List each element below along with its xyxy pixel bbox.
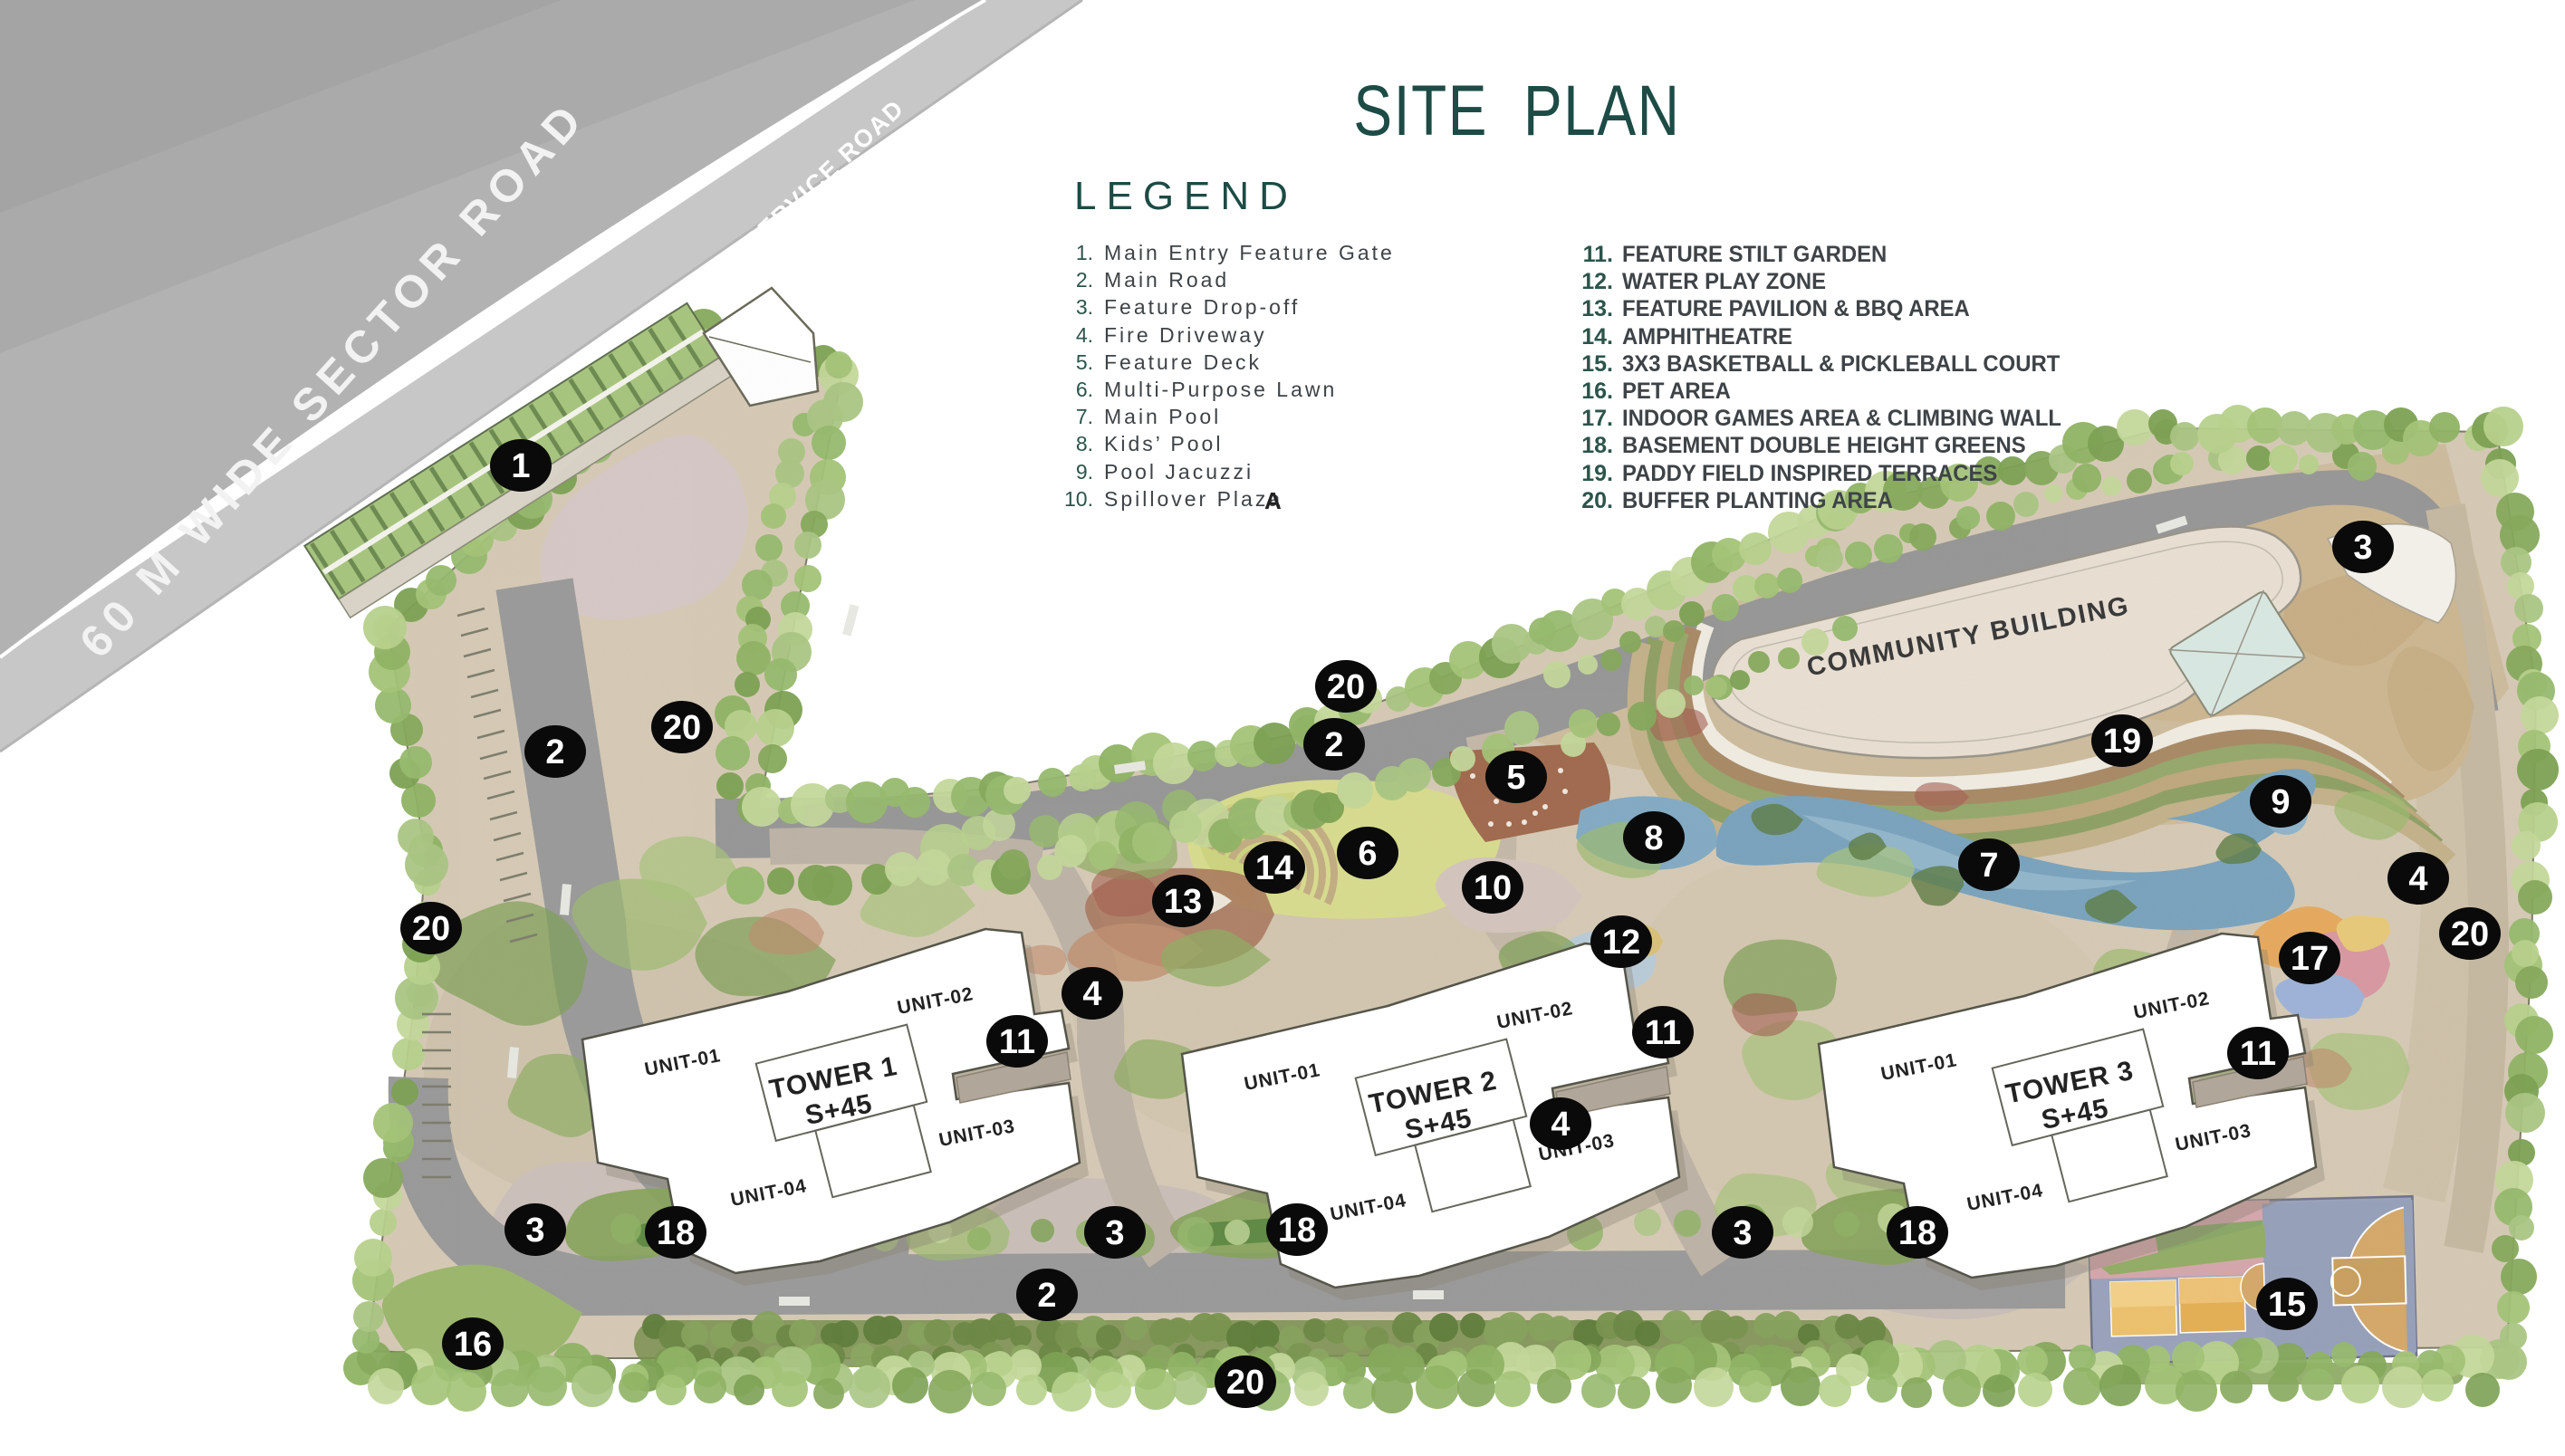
svg-text:19: 19 [2103,723,2141,761]
svg-text:2: 2 [1037,1277,1056,1315]
svg-text:3: 3 [525,1212,544,1250]
svg-text:2: 2 [1324,726,1343,764]
svg-text:20: 20 [2451,915,2489,953]
svg-text:18: 18 [1278,1212,1316,1250]
svg-text:3: 3 [2353,529,2372,567]
svg-text:14: 14 [1255,849,1293,887]
svg-text:11: 11 [2240,1035,2276,1073]
svg-text:5: 5 [1506,759,1525,797]
svg-text:20: 20 [663,709,701,747]
svg-text:20: 20 [1327,668,1365,706]
svg-text:4: 4 [1551,1106,1570,1144]
svg-text:7: 7 [1979,847,1998,885]
svg-text:6: 6 [1358,835,1377,873]
svg-text:8: 8 [1644,819,1663,857]
svg-text:15: 15 [2268,1286,2306,1324]
svg-text:3: 3 [1733,1214,1752,1252]
svg-text:3: 3 [1105,1214,1124,1252]
svg-text:18: 18 [657,1214,695,1252]
svg-text:16: 16 [454,1326,492,1364]
svg-text:1: 1 [511,447,530,485]
svg-text:18: 18 [1898,1214,1936,1252]
svg-text:13: 13 [1164,883,1202,921]
svg-text:4: 4 [1082,975,1101,1013]
svg-text:9: 9 [2271,783,2290,821]
svg-text:20: 20 [1226,1364,1264,1402]
svg-text:20: 20 [412,910,450,948]
svg-text:12: 12 [1602,924,1640,962]
svg-text:11: 11 [999,1023,1035,1061]
svg-text:17: 17 [2291,940,2329,978]
svg-text:11: 11 [1645,1014,1681,1052]
svg-text:10: 10 [1474,869,1512,907]
svg-text:2: 2 [545,733,564,771]
svg-text:4: 4 [2408,860,2427,898]
